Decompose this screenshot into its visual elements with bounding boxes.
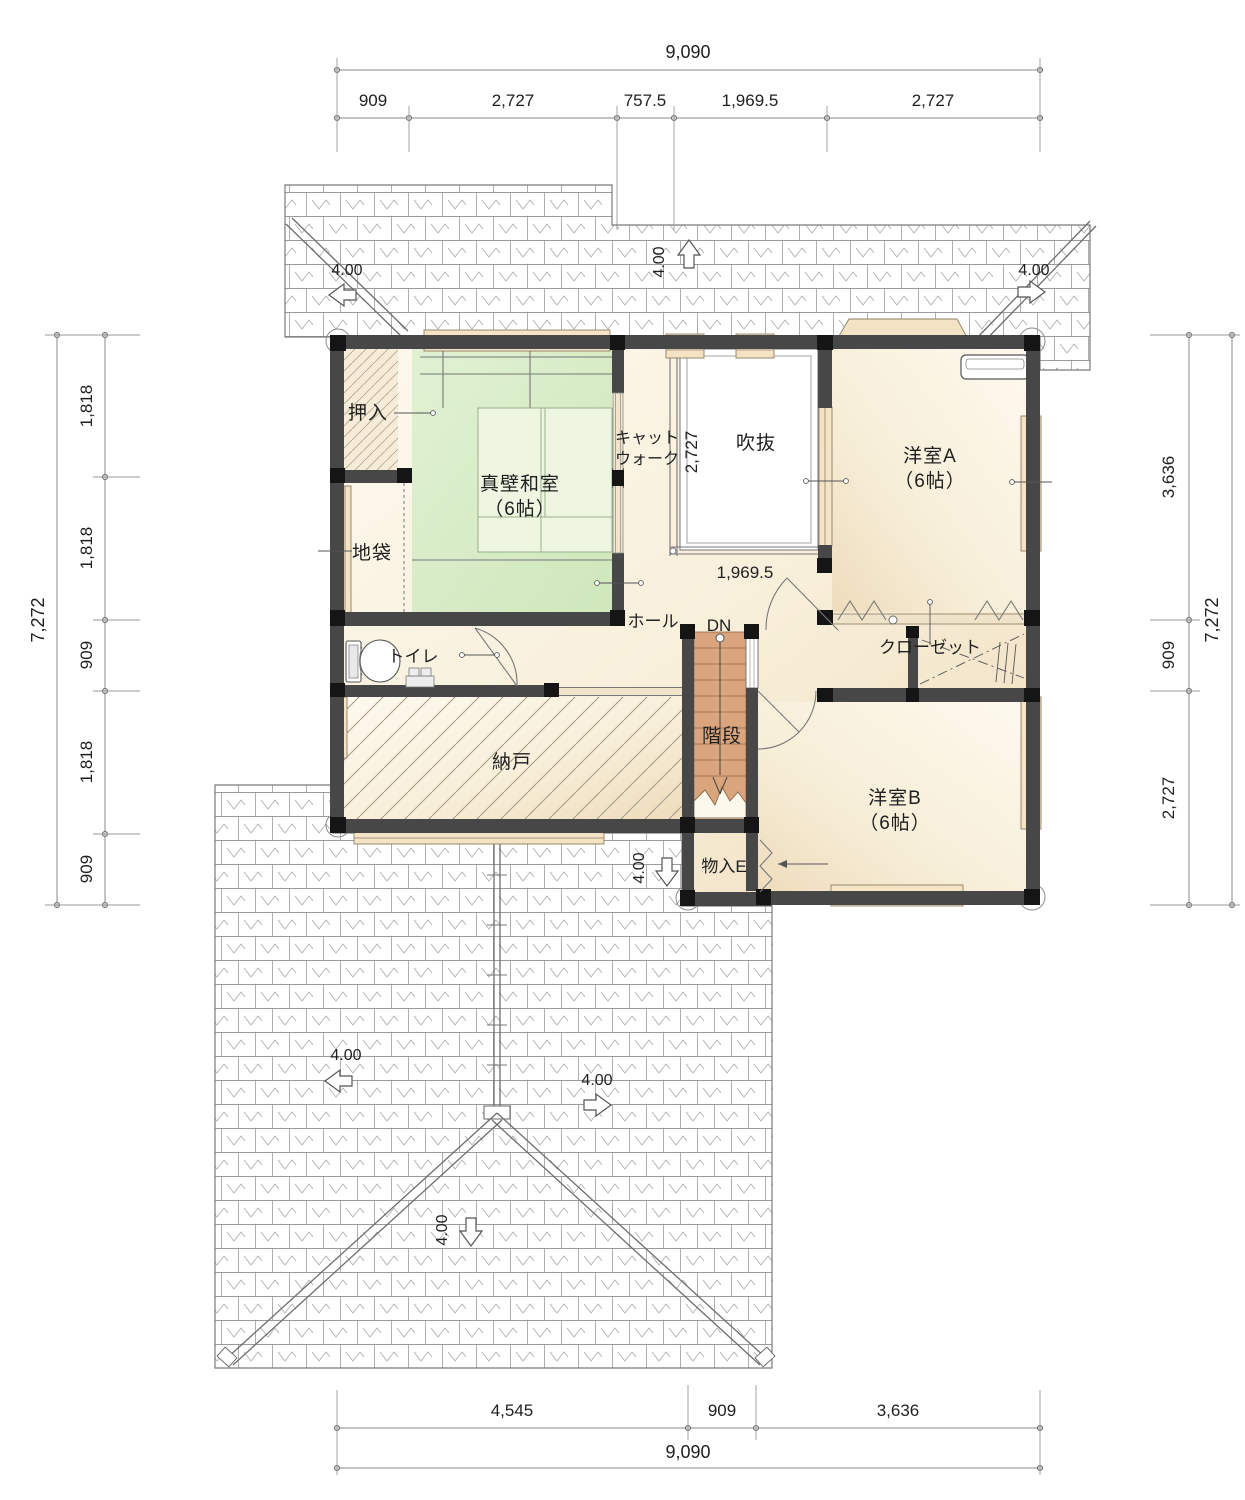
room-label-oshiire: 押入 <box>348 402 388 424</box>
dim-left-seg-1: 1,818 <box>77 385 96 428</box>
dim-top-seg-5: 2,727 <box>912 91 955 110</box>
room-label-catwalk-1: キャット <box>615 430 679 447</box>
room-label-toilet: トイレ <box>388 647 439 666</box>
dim-left-seg-2: 1,818 <box>77 527 96 570</box>
dim-top-seg-3: 757.5 <box>624 91 667 110</box>
pitch-label-top-left: 4.00 <box>331 262 362 279</box>
dim-bottom-overall: 9,090 <box>665 1442 710 1462</box>
dim-top-overall: 9,090 <box>665 42 710 62</box>
room-label-yoshitsu-b-size: （6帖） <box>859 812 931 834</box>
dim-right-seg-2: 909 <box>1159 641 1178 669</box>
dimension-right <box>1150 332 1240 907</box>
room-label-kaidan: 階段 <box>702 725 742 747</box>
dim-right-seg-3: 2,727 <box>1159 777 1178 820</box>
dim-top-seg-2: 2,727 <box>492 91 535 110</box>
room-label-yoshitsu-a: 洋室A <box>903 445 957 467</box>
pitch-label-mid: 4.00 <box>631 852 648 883</box>
room-label-jibukuro: 地袋 <box>352 542 392 564</box>
room-label-washitsu-size: （6帖） <box>484 498 556 520</box>
room-label-yoshitsu-a-size: （6帖） <box>894 470 966 492</box>
room-label-fukinuke: 吹抜 <box>736 432 776 454</box>
stair-direction-label: DN <box>707 616 732 635</box>
room-label-mono-e: 物入E <box>701 857 746 876</box>
window-void-interior <box>819 407 832 546</box>
pitch-label-bottom-center: 4.00 <box>434 1214 451 1245</box>
room-label-catwalk-2: ウォーク <box>615 450 679 468</box>
dim-top-seg-1: 909 <box>359 91 387 110</box>
stair-start-marker <box>716 634 724 642</box>
pitch-label-top-right: 4.00 <box>1018 262 1049 279</box>
pitch-label-top-center: 4.00 <box>651 246 668 277</box>
dim-left-overall: 7,272 <box>28 597 48 642</box>
room-label-closet: クローゼット <box>879 638 981 657</box>
floor-plan-page: 9,090 909 2,727 757.5 1,969.5 2,727 4,54… <box>0 0 1245 1500</box>
room-label-hall: ホール <box>628 612 679 631</box>
dim-top-seg-4: 1,969.5 <box>722 91 779 110</box>
pitch-label-bottom-left: 4.00 <box>330 1047 361 1064</box>
dim-left-seg-5: 909 <box>77 855 96 883</box>
dim-right-overall: 7,272 <box>1202 597 1222 642</box>
dim-void-width: 1,969.5 <box>717 563 774 582</box>
dim-bottom-seg-2: 909 <box>708 1401 736 1420</box>
dim-bottom-seg-1: 4,545 <box>491 1401 534 1420</box>
dim-bottom-seg-3: 3,636 <box>877 1401 920 1420</box>
dim-right-seg-1: 3,636 <box>1159 456 1178 499</box>
room-label-washitsu: 真壁和室 <box>480 473 560 495</box>
room-label-nando: 納戸 <box>492 751 532 773</box>
dim-left-seg-3: 909 <box>77 641 96 669</box>
sliding-door-nando <box>558 688 682 695</box>
pitch-label-bottom-right: 4.00 <box>581 1072 612 1089</box>
paper-holder <box>406 676 434 687</box>
dim-left-seg-4: 1,818 <box>77 741 96 784</box>
dim-void-height: 2,727 <box>682 431 701 474</box>
room-label-yoshitsu-b: 洋室B <box>868 787 922 809</box>
floor-plan-svg: 9,090 909 2,727 757.5 1,969.5 2,727 4,54… <box>0 0 1245 1500</box>
